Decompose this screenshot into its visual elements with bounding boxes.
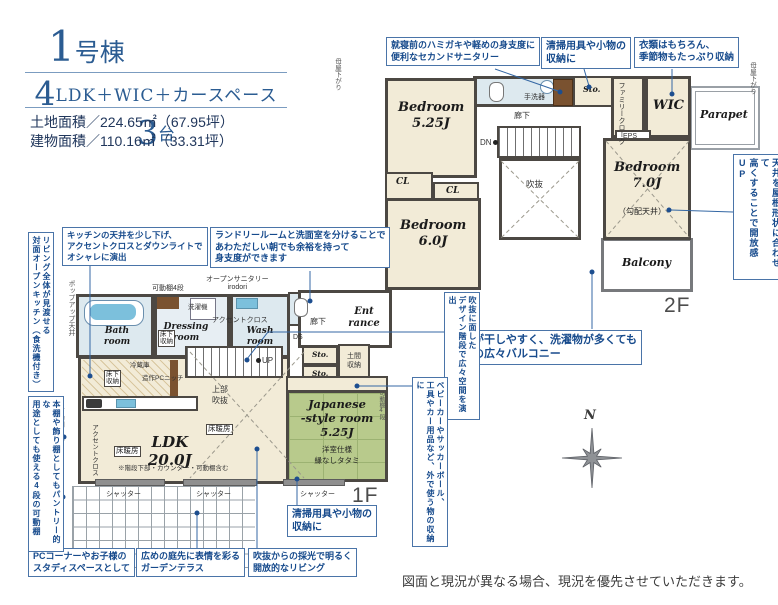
label-open-sanitary: オープンサニタリーirodori [206, 274, 269, 291]
label-moya-right: 母屋下がり [748, 62, 755, 95]
building-number: 1 [48, 22, 75, 71]
toilet-icon-1f [294, 298, 308, 317]
dn-dot [493, 140, 498, 145]
bathtub-icon [84, 300, 144, 326]
void-2f [499, 158, 581, 240]
label-hand-basin: 手洗器 [524, 92, 545, 102]
label-floor-heating-2: 床暖房 [206, 424, 233, 435]
shutter-bar-1 [95, 479, 165, 486]
note-high-ceiling: 天井を屋根形状に合わせて 高くすることで開放感UP [733, 154, 778, 280]
kitchen-sink-icon [116, 399, 136, 408]
label-accent-ldk: アクセントクロス [90, 424, 97, 476]
label-bedroom3: Bedroom7.0J [614, 160, 680, 191]
disclaimer-text: 図面と現況が異なる場合、現況を優先させていただきます。 [402, 571, 752, 590]
label-balcony: Balcony [622, 256, 671, 269]
toilet-icon-2f [489, 82, 504, 102]
label-parapet: Parapet [700, 108, 748, 121]
label-doma: 土間収納 [347, 352, 361, 370]
building-unit: 号棟 [75, 38, 125, 67]
north-label: N [584, 408, 596, 423]
label-shelf-right: 可動棚4段 [378, 390, 384, 420]
label-pc-niche: 造作PCニッチ [142, 372, 184, 382]
land-area: 土地面積／224.65㎡（67.95坪） [30, 112, 234, 132]
label-entrance: Entrance [346, 306, 382, 330]
room-family-closet-2f [611, 76, 645, 138]
label-cl2: CL [446, 186, 460, 197]
label-shelf-top: 可動棚4段 [152, 283, 184, 293]
header-divider-bottom [25, 107, 287, 108]
label-wic: WIC [653, 98, 684, 114]
label-accent-wash: アクセントクロス [212, 315, 268, 325]
up-dot [256, 358, 261, 363]
shutter-bar-3 [283, 479, 345, 486]
label-moya-left: 母屋下がり [333, 58, 340, 91]
label-bedroom1: Bedroom5.25J [398, 100, 464, 131]
label-fridge: 冷蔵庫 [130, 359, 150, 369]
note-garden-terrace: 広めの庭先に表情を彩る ガーデンテラス [136, 548, 245, 577]
label-underfloor-kitchen: 床下収納 [104, 370, 121, 387]
counter-2f [553, 79, 573, 106]
note-cleaning-2f: 清掃用具や小物の 収納に [541, 37, 631, 69]
label-void-2f: 吹抜 [526, 178, 543, 190]
plan-text: LDK＋WIC＋カースペース [56, 86, 278, 106]
label-japanese-spec: 洋室仕様 縁なしタタミ [314, 444, 360, 466]
label-sloped-ceiling: （勾配天井） [618, 206, 666, 217]
compass-star-icon [562, 428, 622, 488]
note-wic-storage: 衣類はもちろん、 季節物もたっぷり収納 [634, 37, 739, 68]
note-laundry: ランドリールームと洗面室を分けることで あわただしい朝でも余裕を持って 身支度が… [210, 227, 390, 268]
label-cl1: CL [396, 177, 410, 188]
note-open-kitchen: リビング全体が見渡せる 対面オープンキッチン（食洗機付き） [28, 232, 54, 392]
building-area: 建物面積／110.16㎡（33.31坪） [30, 131, 233, 151]
label-corridor-2f: 廊下 [514, 110, 530, 121]
label-dn: DN [480, 138, 498, 147]
japanese-closet [286, 376, 388, 392]
label-sto2: Sto. [312, 369, 328, 378]
stove-icon [86, 399, 102, 408]
label-wash: Washroom [244, 326, 276, 348]
label-bedroom2: Bedroom6.0J [400, 218, 466, 249]
floorplan-flyer: { "header": { "building_num": "1", "buil… [0, 0, 778, 605]
note-pc-corner: PCコーナーやお子様の スタディスペースとして [28, 548, 135, 577]
label-shutter-2: シャッター [196, 489, 231, 499]
label-sto-2f: Sto. [583, 85, 600, 95]
note-movable-shelf: 本棚や飾り棚としてもパントリー的な 用途としても使える4段の可動棚 [28, 396, 64, 552]
label-ds: DS [293, 334, 303, 341]
label-japanese-room: Japanese -style room 5.25J [296, 398, 378, 439]
note-design-stairs: 吹抜に面した デザイン階段で広々空間を演出 [444, 292, 480, 420]
stairs-2f [497, 126, 581, 158]
shutter-bar-2 [183, 479, 257, 486]
label-upper-void: 上部吹抜 [212, 384, 228, 406]
label-underfloor-dressing: 床下収納 [158, 330, 175, 347]
note-bright-living: 吹抜からの採光で明るく 開放的なリビング [248, 548, 357, 577]
label-washer: 洗濯機 [188, 301, 208, 311]
label-shutter-3: シャッター [300, 489, 335, 499]
label-bath: Bathroom [102, 326, 132, 348]
floor-label-2f: 2F [664, 294, 691, 318]
label-floor-heating-1: 床暖房 [114, 446, 141, 457]
header-divider-top [25, 72, 287, 73]
note-outdoor-storage: ベビーカーやサッカーボール、 工具やカー用品など、外で使う物の収納に [412, 377, 448, 547]
wash-sink-icon [236, 298, 258, 309]
label-up: UP [256, 356, 273, 365]
label-sto1: Sto. [312, 350, 328, 359]
label-corridor-1f: 廊下 [310, 316, 326, 327]
note-second-sanitary: 就寝前のハミガキや軽めの身支度に 便利なセカンドサニタリー [386, 37, 540, 66]
note-kitchen-ceiling: キッチンの天井を少し下げ、 アクセントクロスとダウンライトで オシャレに演出 [62, 227, 208, 266]
note-cleaning-1f: 清掃用具や小物の 収納に [287, 505, 377, 537]
building-title: 1号棟 [48, 22, 125, 71]
label-eps: EPS [623, 133, 637, 140]
bathtub-water [90, 304, 136, 320]
label-shutter-1: シャッター [106, 489, 141, 499]
dressing-shelf [157, 297, 179, 309]
label-popup-ceiling: ポップアップ天井 [68, 280, 75, 336]
label-ldk-note: ※階段下部・カウンター・可動棚含む [118, 462, 229, 472]
